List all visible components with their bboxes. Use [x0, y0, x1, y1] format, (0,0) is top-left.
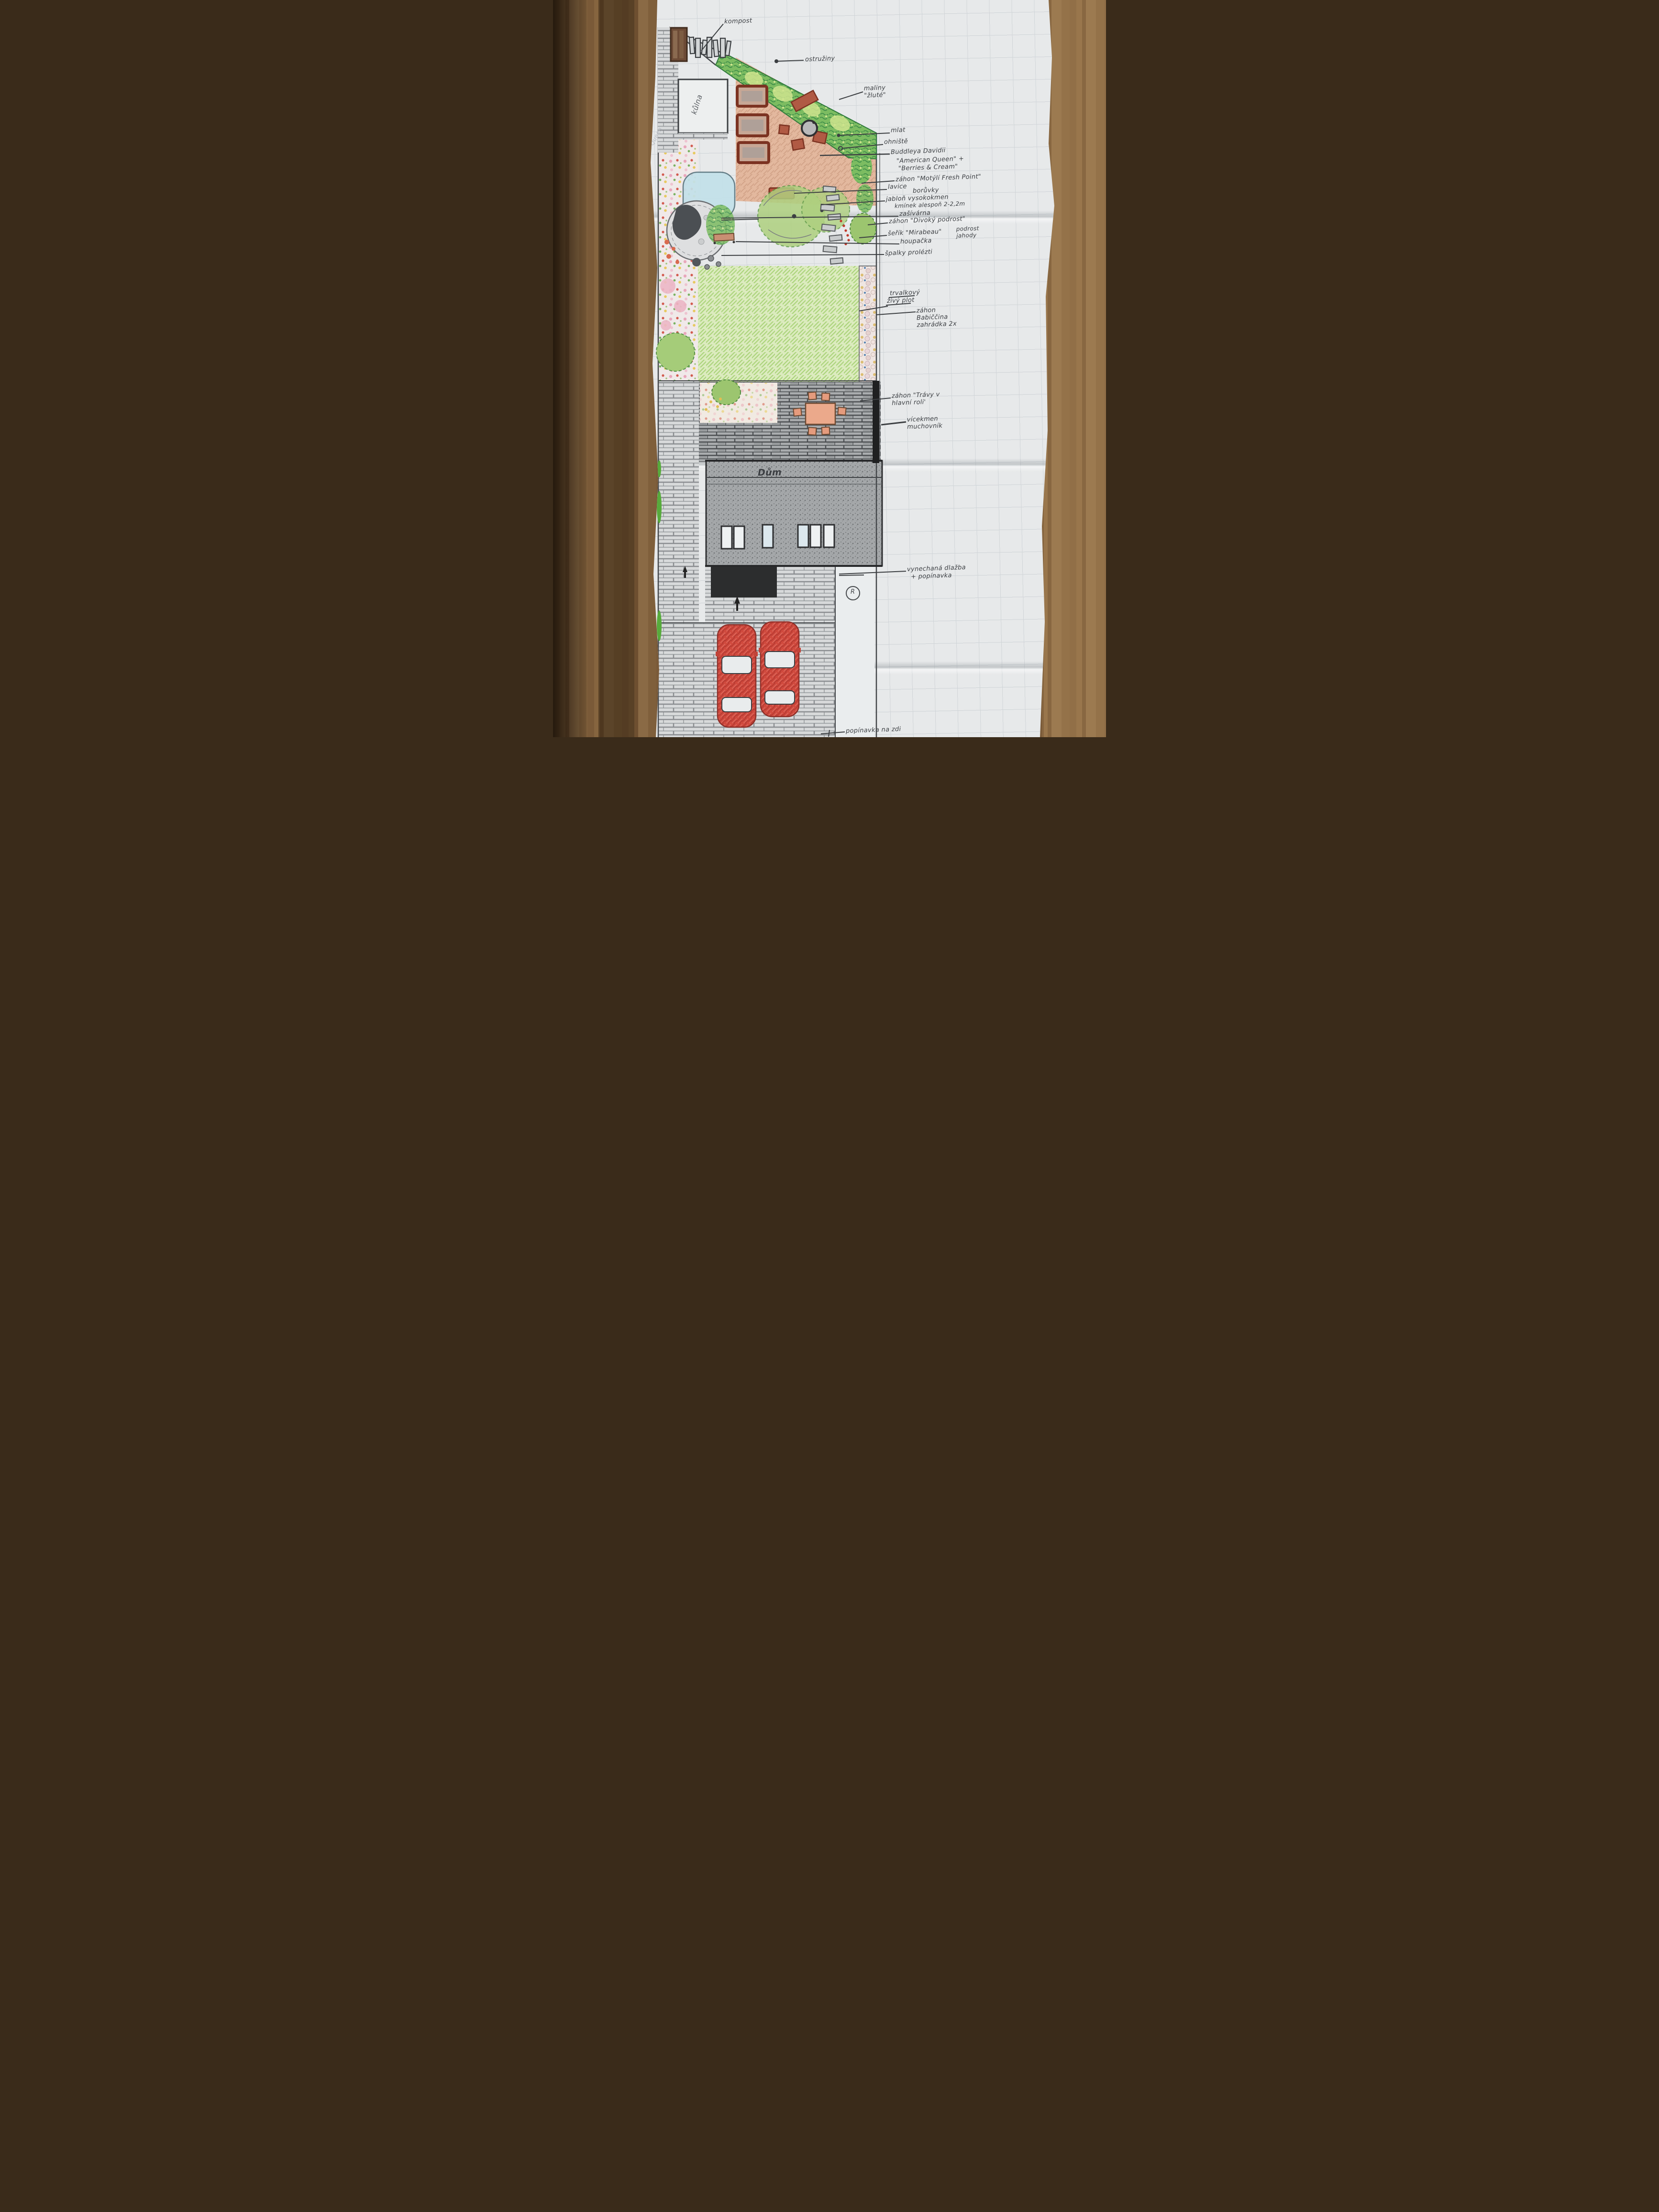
lilac-mirabeau-shrub — [850, 213, 876, 244]
car-red — [716, 625, 758, 727]
wood-table-plank-gap — [598, 0, 634, 737]
swing-post — [714, 242, 716, 244]
car-red — [759, 622, 801, 717]
fire-pit-dot — [812, 121, 815, 124]
raspberry-bush — [851, 151, 872, 184]
door-plank — [673, 31, 677, 58]
raised-beds — [737, 86, 769, 163]
swing-post — [733, 241, 735, 243]
concrete-strip — [835, 566, 874, 737]
border-shrub — [656, 333, 695, 371]
blueberry-bush — [856, 184, 874, 213]
leader-dot — [837, 134, 841, 137]
wood-table-left-shadow — [553, 0, 586, 737]
house-footprint — [706, 461, 882, 566]
wood-table-right-highlight — [1044, 0, 1106, 737]
shed-brick-edging — [678, 133, 728, 140]
leader-dot — [774, 59, 778, 63]
photo-scene: kompost ostružiny maliny "žluté" mlat oh… — [553, 0, 1106, 737]
garden-plan-drawing — [553, 0, 1106, 737]
serviceberry-multistem — [712, 380, 741, 405]
shed-kulna — [678, 79, 728, 133]
climber-planting-dark-bed — [711, 567, 777, 597]
paper-edge-shadow — [1092, 0, 1106, 737]
patio-edge-wall — [873, 381, 879, 463]
plan-paper-sheet: kompost ostružiny maliny "žluté" mlat oh… — [553, 0, 1106, 737]
lawn-area — [697, 266, 859, 384]
pebble-border-strip — [859, 266, 876, 383]
swing-houpacka — [714, 233, 734, 241]
door-plank — [679, 31, 684, 58]
